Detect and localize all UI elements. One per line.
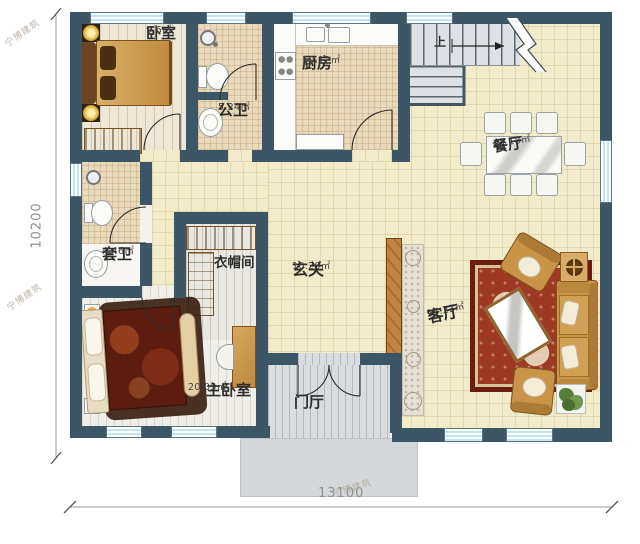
window — [90, 12, 164, 24]
wall-bedroom-right — [186, 12, 198, 162]
dining-chair — [484, 174, 506, 196]
sofa-backrest — [589, 283, 598, 389]
window — [70, 163, 82, 197]
wall-kitchen-bottom-a — [274, 150, 352, 162]
side-table-cross — [563, 266, 586, 268]
pillow — [100, 76, 116, 100]
room-name: 公卫 — [218, 103, 248, 119]
lamp-icon — [83, 25, 99, 41]
door-gap-kitchen — [352, 150, 392, 162]
stairs-lower-flight — [410, 66, 464, 106]
wall-ensuite-right-a — [140, 162, 152, 205]
wall-kitchen-right — [398, 12, 410, 162]
wall-bath-bottom-b — [252, 150, 274, 162]
wall-ensuite-right-b — [140, 243, 152, 286]
floor-corridor — [152, 162, 268, 212]
wall-exterior-right — [600, 12, 612, 442]
dining-chair — [484, 112, 506, 134]
dining-chair — [510, 174, 532, 196]
stove-icon — [275, 52, 296, 80]
window — [106, 426, 142, 438]
desk — [232, 326, 256, 388]
door-gap-bedroom — [140, 150, 180, 162]
wall-bath-bottom-a — [198, 150, 228, 162]
armchair-pillow — [514, 252, 545, 282]
toilet-icon — [206, 63, 229, 90]
wall-bedroom-bottom-a — [70, 150, 140, 162]
kitchen-cabinet — [296, 134, 344, 150]
stairs-upper-flight — [410, 24, 520, 66]
dimension-height: 10200 — [30, 202, 45, 248]
armchair-pillow — [521, 376, 547, 398]
master-bed-group — [80, 296, 210, 428]
room-name: 玄关 — [292, 262, 324, 279]
room-name: 门厅 — [294, 395, 324, 411]
plant-leaf — [562, 399, 575, 411]
pillow — [100, 46, 116, 70]
wall-entry-left — [256, 353, 298, 365]
window — [600, 140, 612, 203]
window — [292, 12, 371, 24]
dining-chair — [460, 142, 482, 166]
stone-pebble — [407, 300, 420, 313]
washbasin-inner — [203, 114, 218, 131]
wall-exterior-bottom-left — [70, 426, 270, 438]
floor-plan: 卧室 9.6㎡ 5.24㎡ 公卫 厨房 10.12㎡ 13.18㎡ 餐厅 4.4… — [0, 0, 640, 544]
dining-chair — [564, 142, 586, 166]
window — [444, 428, 483, 442]
bed-quilt — [102, 305, 187, 410]
sofa-armrest — [558, 282, 590, 293]
stone-pebble — [406, 352, 421, 367]
room-name: 衣帽间 — [214, 256, 255, 270]
room-name: 套卫 — [102, 247, 132, 263]
room-name: 主卧室 — [206, 383, 251, 399]
wood-screen — [386, 238, 402, 356]
dining-chair — [536, 112, 558, 134]
toilet-icon — [91, 200, 113, 226]
dining-chair — [510, 112, 532, 134]
lamp-icon — [83, 105, 99, 121]
watermark: 宁博建筑 — [2, 16, 42, 50]
wall-exterior-bottom-right — [392, 428, 612, 442]
watermark: 宁博建筑 — [4, 280, 44, 314]
wall-bedroom-bottom-b — [180, 150, 198, 162]
wall-cloakroom-top — [174, 212, 258, 224]
kitchen-counter-left — [274, 24, 296, 150]
wall-foyer-right-jamb — [390, 353, 402, 433]
window — [206, 12, 246, 24]
stone-feature-wall — [402, 244, 424, 416]
sink-bowl — [328, 27, 350, 43]
pillow — [84, 317, 104, 356]
washbasin-inner — [89, 256, 103, 272]
shower-arm — [213, 42, 218, 47]
cloakroom-wardrobe — [186, 226, 256, 250]
room-area: 10.12㎡ — [302, 56, 341, 66]
window — [171, 426, 217, 438]
bath-divider-wall — [198, 92, 228, 100]
door-gap-public-bath — [228, 150, 252, 162]
wall-exterior-left — [70, 12, 82, 438]
door-gap-master — [142, 286, 174, 298]
door-gap-ensuite — [140, 205, 152, 243]
stairs-up-label: 上 — [434, 36, 446, 49]
stone-pebble — [404, 392, 422, 410]
wall-bath-kitchen — [262, 12, 274, 162]
plant-pot — [556, 384, 586, 414]
wall-hall-left — [256, 212, 268, 353]
floor-foyer — [268, 365, 390, 438]
wall-master-top — [70, 286, 142, 298]
wall-entry-right — [360, 353, 402, 365]
bed-headboard — [82, 42, 96, 104]
sink-bowl — [306, 27, 325, 42]
armchair — [510, 366, 557, 416]
door-gap-entry — [298, 353, 360, 365]
dining-chair — [536, 174, 558, 196]
shower-icon — [86, 170, 101, 185]
wall-foyer-left-jamb — [256, 353, 268, 438]
stone-pebble — [405, 250, 421, 266]
room-area: 9.6㎡ — [146, 26, 172, 36]
pillow — [87, 363, 107, 402]
window — [506, 428, 553, 442]
sofa — [556, 280, 598, 390]
side-table — [560, 252, 588, 282]
window — [406, 12, 453, 24]
wall-cloakroom-left — [174, 212, 186, 298]
